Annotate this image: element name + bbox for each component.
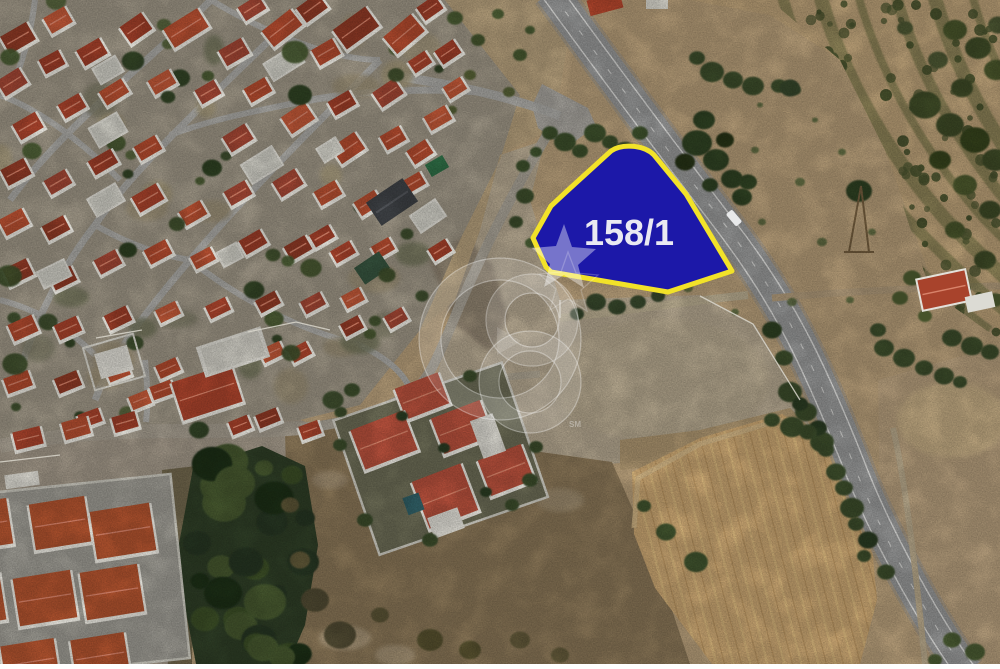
svg-text:158/1: 158/1	[584, 212, 674, 253]
svg-text:SM: SM	[569, 420, 581, 429]
